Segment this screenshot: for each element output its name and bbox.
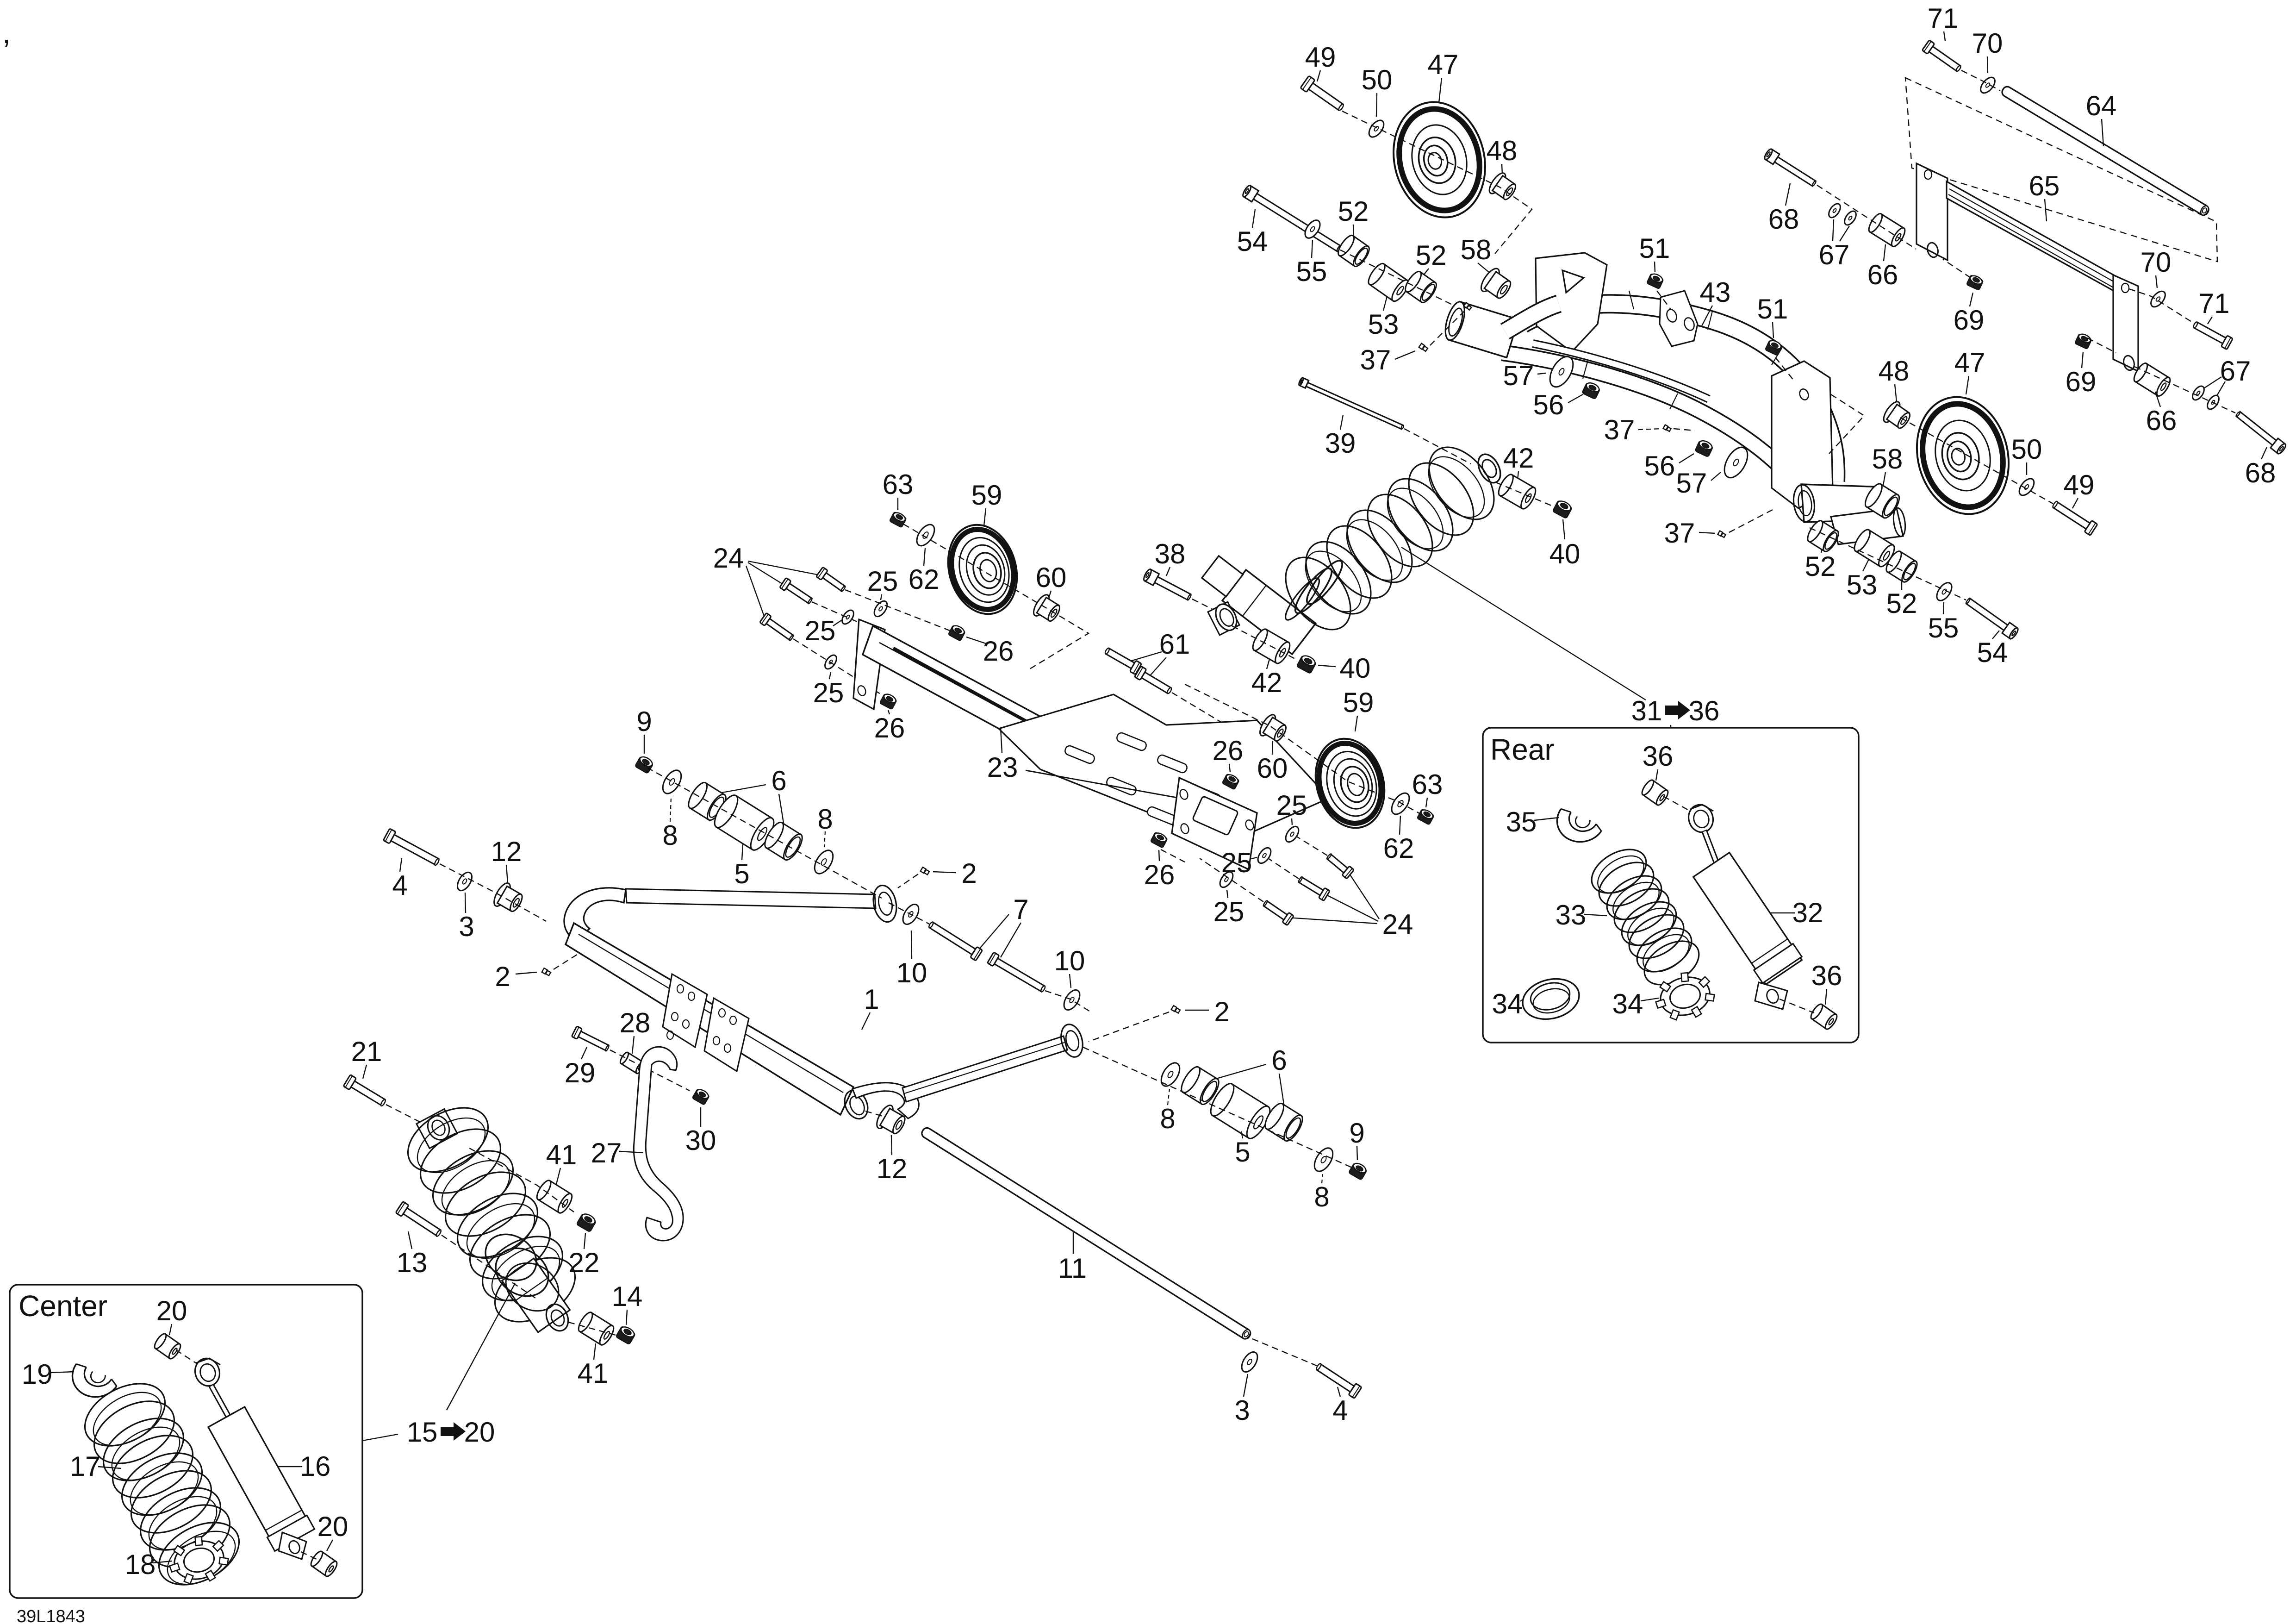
svg-text:39L1843: 39L1843 [17,1607,85,1624]
svg-text:14: 14 [612,1281,643,1312]
svg-text:67: 67 [1819,239,1850,270]
svg-text:24: 24 [713,543,744,574]
svg-text:26: 26 [1144,859,1175,890]
svg-text:8: 8 [1314,1181,1329,1212]
svg-text:59: 59 [1343,687,1374,718]
svg-text:5: 5 [1235,1137,1250,1168]
svg-text:9: 9 [1349,1118,1364,1149]
svg-text:8: 8 [817,804,833,835]
svg-text:31: 31 [1631,695,1662,726]
svg-text:34: 34 [1612,988,1643,1019]
svg-text:48: 48 [1879,356,1910,387]
svg-text:47: 47 [1954,347,1985,378]
svg-text:60: 60 [1257,753,1288,784]
svg-text:66: 66 [1867,259,1898,290]
svg-text:20: 20 [317,1511,348,1542]
svg-text:1: 1 [864,984,879,1015]
svg-text:37: 37 [1604,414,1635,445]
svg-text:30: 30 [685,1125,716,1156]
svg-text:6: 6 [1271,1045,1287,1076]
svg-text:20: 20 [156,1295,187,1326]
svg-text:54: 54 [1237,226,1268,257]
svg-text:57: 57 [1676,468,1707,499]
svg-text:12: 12 [491,836,522,867]
svg-text:40: 40 [1549,538,1580,569]
svg-text:2: 2 [1214,996,1229,1027]
svg-text:70: 70 [2140,247,2172,278]
svg-text:24: 24 [1382,909,1413,940]
svg-text:68: 68 [1768,204,1799,235]
svg-text:50: 50 [2011,434,2042,465]
svg-text:25: 25 [1276,790,1307,821]
svg-text:52: 52 [1338,196,1369,227]
svg-text:9: 9 [636,706,652,737]
svg-text:71: 71 [1928,3,1959,34]
svg-text:11: 11 [1058,1253,1087,1284]
svg-text:65: 65 [2029,170,2060,201]
svg-text:34: 34 [1492,988,1523,1019]
svg-text:25: 25 [805,615,836,646]
svg-text:25: 25 [813,677,844,708]
svg-text:17: 17 [70,1451,101,1482]
svg-text:4: 4 [1332,1395,1348,1426]
svg-text:29: 29 [565,1057,596,1088]
svg-text:63: 63 [883,469,914,500]
svg-text:66: 66 [2146,405,2177,436]
svg-text:49: 49 [1305,42,1336,73]
svg-text:3: 3 [1234,1395,1250,1426]
svg-text:52: 52 [1416,240,1447,271]
svg-text:3: 3 [459,911,474,942]
svg-text:71: 71 [2199,288,2230,319]
svg-text:53: 53 [1847,569,1878,600]
svg-text:12: 12 [877,1153,908,1184]
svg-text:41: 41 [578,1358,609,1389]
svg-text:39: 39 [1325,428,1356,459]
svg-text:42: 42 [1251,667,1282,698]
svg-text:19: 19 [22,1359,53,1390]
svg-text:48: 48 [1487,135,1518,166]
svg-text:20: 20 [464,1417,495,1448]
svg-text:50: 50 [1362,64,1393,95]
svg-text:36: 36 [1811,960,1842,991]
svg-text:68: 68 [2245,457,2276,488]
svg-text:37: 37 [1360,344,1391,375]
svg-text:56: 56 [1644,450,1675,481]
svg-text:58: 58 [1461,234,1492,265]
svg-text:36: 36 [1643,741,1674,772]
svg-text:18: 18 [125,1549,156,1580]
svg-text:56: 56 [1533,389,1564,420]
svg-text:59: 59 [971,480,1002,511]
svg-text:7: 7 [1013,894,1028,925]
svg-text:69: 69 [1954,305,1985,336]
svg-text:26: 26 [983,636,1014,667]
svg-text:4: 4 [392,870,407,901]
svg-text:49: 49 [2064,469,2095,500]
svg-text:55: 55 [1296,256,1327,287]
svg-text:28: 28 [620,1007,651,1038]
svg-text:,: , [2,16,11,50]
svg-text:26: 26 [1213,735,1244,766]
svg-text:54: 54 [1977,637,2008,668]
svg-text:25: 25 [1213,896,1244,927]
svg-text:52: 52 [1805,551,1836,582]
svg-text:52: 52 [1886,588,1917,619]
svg-text:58: 58 [1872,443,1903,475]
svg-text:10: 10 [1054,945,1085,976]
svg-text:70: 70 [1972,28,2003,59]
svg-text:53: 53 [1368,309,1399,340]
svg-text:23: 23 [987,752,1018,783]
svg-text:6: 6 [771,765,786,796]
svg-text:57: 57 [1503,360,1534,391]
svg-text:37: 37 [1664,518,1695,549]
svg-text:69: 69 [2066,366,2097,397]
svg-text:51: 51 [1639,233,1670,264]
svg-text:2: 2 [495,961,510,992]
svg-text:32: 32 [1792,897,1823,928]
svg-text:41: 41 [546,1139,577,1170]
svg-text:27: 27 [591,1137,622,1168]
svg-text:Center: Center [19,1289,107,1323]
svg-text:51: 51 [1757,294,1788,325]
svg-text:35: 35 [1506,806,1537,837]
svg-text:5: 5 [734,858,749,889]
svg-text:10: 10 [896,957,927,988]
svg-text:47: 47 [1428,49,1459,80]
svg-text:43: 43 [1700,277,1731,308]
svg-text:2: 2 [961,858,977,889]
svg-text:42: 42 [1503,443,1534,474]
svg-text:16: 16 [300,1451,331,1482]
svg-text:60: 60 [1036,562,1067,593]
svg-text:8: 8 [662,820,678,851]
svg-text:33: 33 [1556,899,1587,931]
svg-text:Rear: Rear [1490,733,1555,766]
svg-text:61: 61 [1159,629,1190,660]
svg-text:13: 13 [397,1247,428,1278]
svg-text:25: 25 [867,566,898,597]
svg-text:63: 63 [1412,769,1443,800]
svg-text:15: 15 [407,1417,438,1448]
svg-text:64: 64 [2086,90,2117,121]
svg-text:26: 26 [874,712,905,743]
svg-text:40: 40 [1340,653,1371,684]
svg-text:55: 55 [1928,612,1959,643]
svg-text:62: 62 [1383,833,1414,864]
svg-text:38: 38 [1155,538,1186,569]
svg-text:8: 8 [1160,1103,1175,1134]
svg-text:22: 22 [569,1247,600,1278]
svg-text:21: 21 [351,1036,382,1067]
svg-text:36: 36 [1689,695,1720,726]
svg-text:62: 62 [908,564,940,595]
